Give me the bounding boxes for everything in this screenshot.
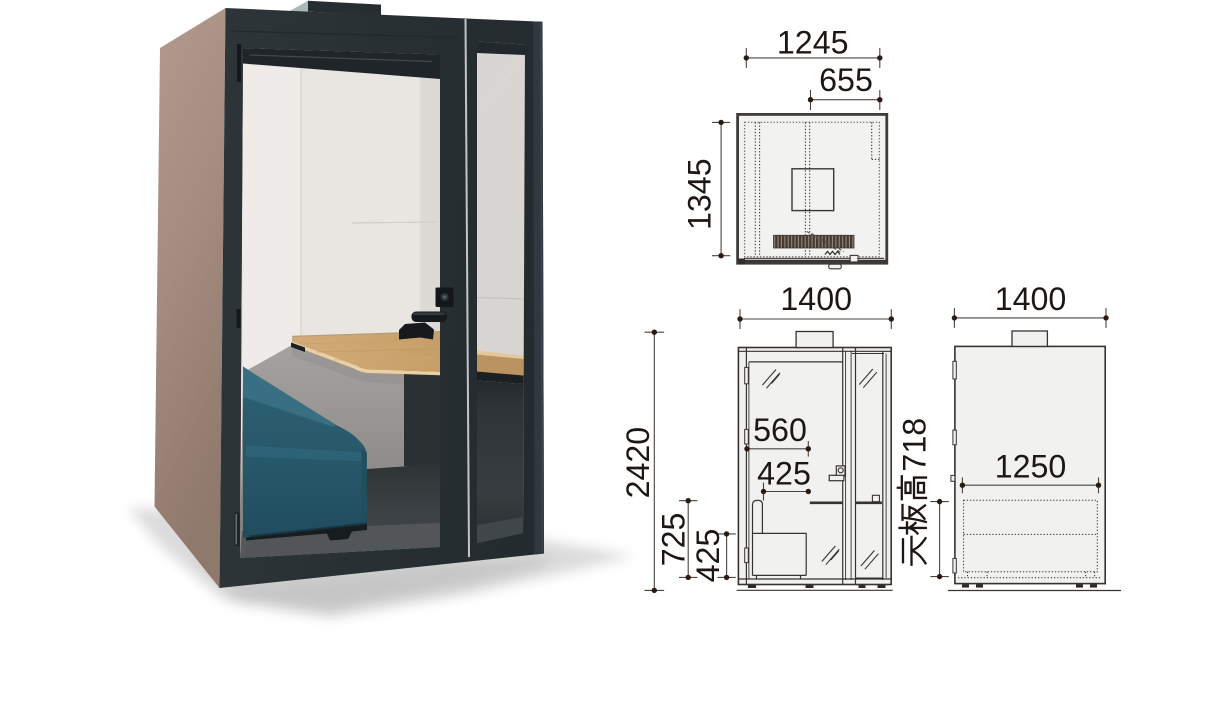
svg-text:1400: 1400 — [995, 281, 1067, 317]
svg-text:725: 725 — [656, 513, 692, 567]
svg-text:718: 718 — [897, 418, 933, 472]
svg-text:425: 425 — [690, 529, 726, 583]
svg-text:655: 655 — [819, 62, 873, 98]
svg-text:560: 560 — [753, 412, 807, 448]
svg-text:1345: 1345 — [682, 158, 718, 230]
svg-text:1400: 1400 — [780, 281, 852, 317]
svg-text:2420: 2420 — [620, 427, 656, 499]
svg-text:425: 425 — [757, 456, 811, 492]
svg-text:1245: 1245 — [777, 25, 849, 61]
svg-text:1250: 1250 — [995, 449, 1067, 485]
